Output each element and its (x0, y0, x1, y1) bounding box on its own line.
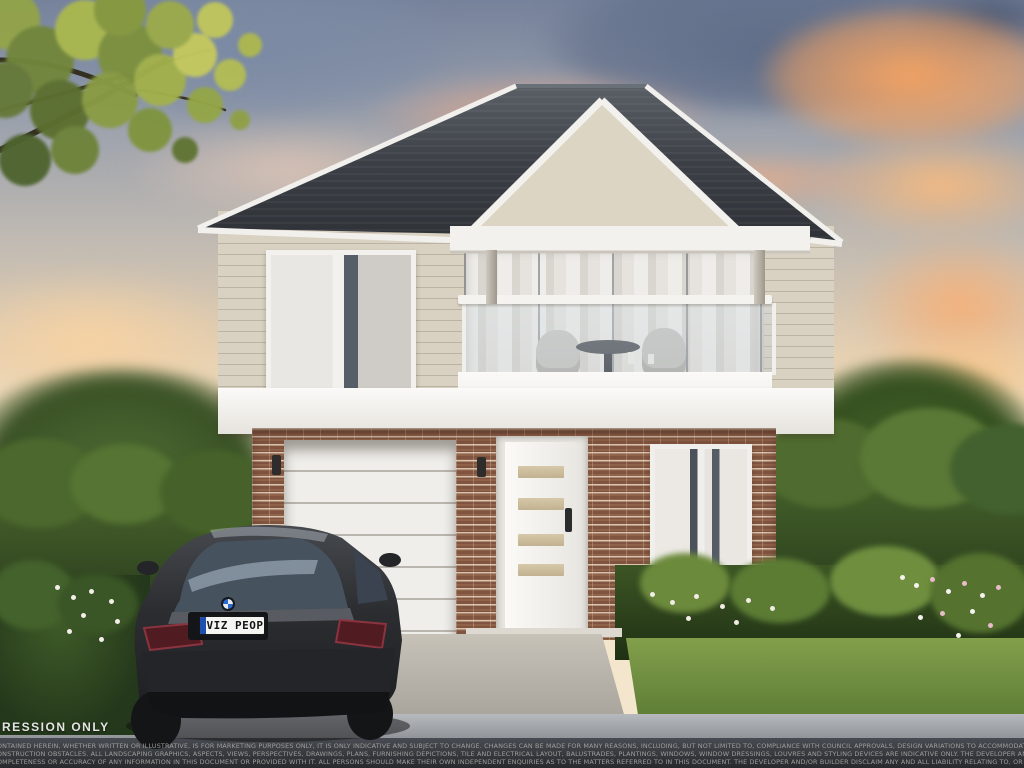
bush (830, 546, 940, 616)
flowers-right (900, 575, 905, 580)
bush (640, 553, 730, 613)
bush (730, 558, 830, 623)
balcony-post-left (486, 250, 497, 304)
bush (930, 553, 1024, 633)
disclaimer-line-1: ONTAINED HEREIN, WHETHER WRITTEN OR ILLU… (0, 743, 1024, 751)
left-mirror (137, 561, 159, 575)
license-plate: VIZ PEOP (198, 615, 266, 636)
door-glazing-slat (518, 466, 564, 478)
taillight-right (336, 620, 386, 648)
disclaimer-line-2: ONSTRUCTION OBSTACLES. ALL LANDSCAPING G… (0, 751, 1024, 759)
door-lock-handle (565, 508, 572, 532)
wall-light (272, 455, 281, 475)
bmw-roundel-icon (221, 597, 235, 611)
suv-car (118, 520, 413, 755)
lawn (596, 638, 1024, 720)
flowers-center (650, 592, 655, 597)
balcony-handrail (458, 295, 772, 304)
artist-impression-watermark: RESSION ONLY (2, 720, 110, 734)
tree-leaves (0, 0, 262, 186)
door-glazing-slat (518, 498, 564, 510)
door-glazing-slat (518, 564, 564, 576)
disclaimer-line-3: OMPLETENESS OR ACCURACY OF ANY INFORMATI… (0, 759, 1024, 767)
door-glazing-slat (518, 534, 564, 546)
flowers-left (55, 585, 60, 590)
artist-impression-render: VIZ PEOP RESSION ONLY ONTAINED HEREIN, W… (0, 0, 1024, 768)
legal-disclaimer: ONTAINED HEREIN, WHETHER WRITTEN OR ILLU… (0, 743, 1024, 766)
balcony-soffit (450, 226, 810, 252)
plate-number: VIZ PEOP (206, 619, 264, 632)
upper-window-left (266, 250, 416, 398)
right-mirror (379, 553, 401, 567)
balcony-glass-balustrade (462, 303, 776, 375)
foreground-tree (0, 0, 300, 250)
wall-light (477, 457, 486, 477)
front-door (505, 442, 577, 640)
balcony-post-right (754, 250, 765, 304)
